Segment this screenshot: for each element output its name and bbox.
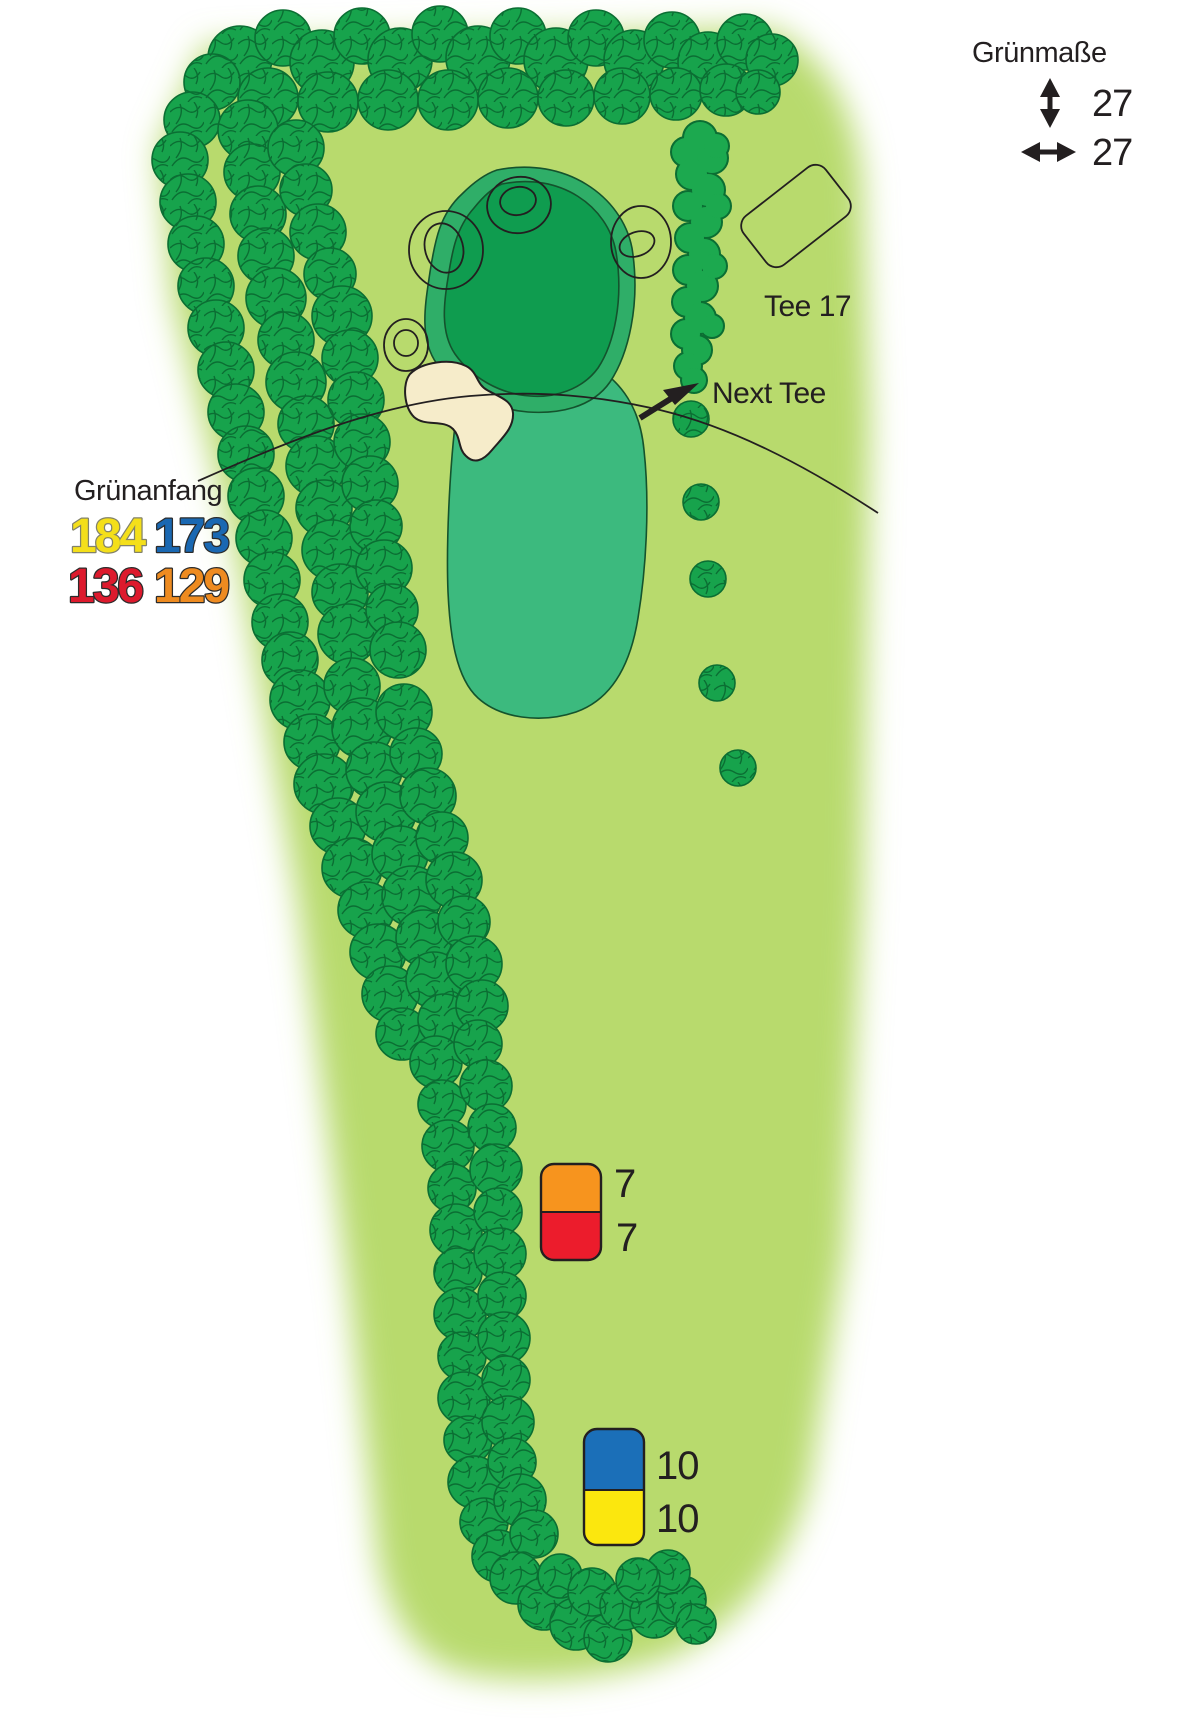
green-size-title: Grünmaße — [972, 37, 1107, 69]
green-width-value: 27 — [1092, 132, 1132, 174]
tee-label: Tee 17 — [764, 290, 851, 323]
green-start-legend: Grünanfang 184 173 136 129 — [68, 475, 228, 613]
golf-hole-map: Grünmaße 27 27 Grünanfang 184 173 136 12… — [0, 0, 1191, 1721]
marker10-yellow-label: 10 — [656, 1497, 699, 1541]
green-start-yellow: 184 — [70, 510, 146, 563]
green-depth-value: 27 — [1092, 83, 1132, 125]
green-start-orange: 129 — [154, 560, 228, 613]
horizontal-measure-icon — [1021, 142, 1076, 162]
distance-marker-7 — [541, 1164, 601, 1260]
green-start-blue: 173 — [154, 510, 228, 563]
green-start-red: 136 — [68, 560, 142, 613]
putting-green — [444, 182, 618, 397]
golf-hole-map-page: Grünmaße 27 27 Grünanfang 184 173 136 12… — [0, 0, 1191, 1721]
green-start-title: Grünanfang — [74, 475, 222, 507]
marker7-orange-label: 7 — [614, 1162, 635, 1206]
marker10-blue-label: 10 — [656, 1444, 699, 1488]
marker7-red-label: 7 — [616, 1216, 637, 1260]
vertical-measure-icon — [1040, 78, 1060, 128]
next-tee-label: Next Tee — [712, 377, 826, 410]
green-size-legend: Grünmaße 27 27 — [972, 37, 1132, 174]
distance-marker-10 — [584, 1429, 644, 1545]
